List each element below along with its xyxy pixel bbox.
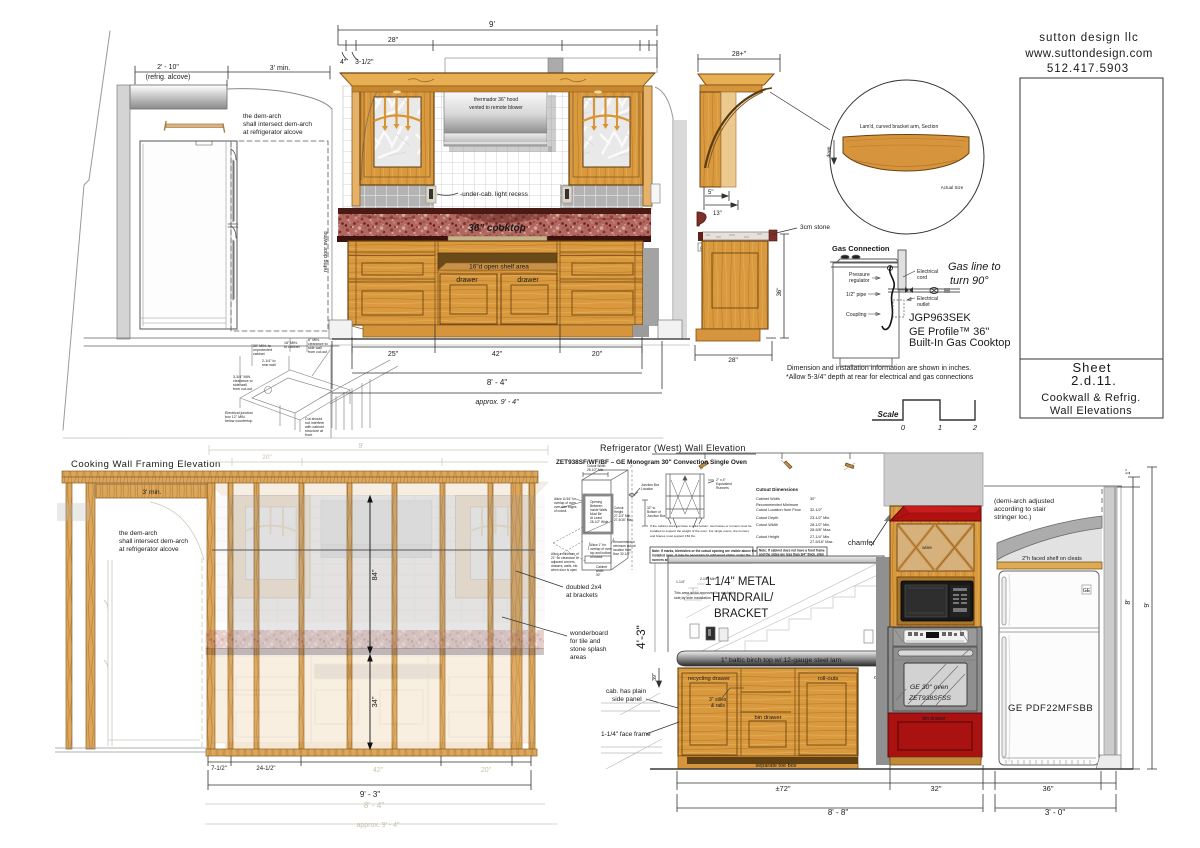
svg-text:thermador 36" hood: thermador 36" hood <box>474 97 518 103</box>
svg-text:20": 20" <box>592 351 603 358</box>
svg-text:JGP963SEK: JGP963SEK <box>909 312 971 324</box>
svg-text:Junction Box: Junction Box <box>647 514 666 518</box>
svg-text:to cabinet: to cabinet <box>284 345 300 349</box>
svg-text:(refrig. alcove): (refrig. alcove) <box>146 74 191 81</box>
svg-text:1" baltic birch top w/ 12-gaug: 1" baltic birch top w/ 12-gauge steel la… <box>721 657 843 664</box>
svg-text:shall intersect dem-arch: shall intersect dem-arch <box>243 121 312 128</box>
svg-text:16"d open shelf area: 16"d open shelf area <box>469 264 529 271</box>
svg-text:8' - 8": 8' - 8" <box>828 808 849 817</box>
svg-text:5": 5" <box>708 190 713 196</box>
svg-text:3' min.: 3' min. <box>270 65 290 72</box>
svg-text:30": 30" <box>596 573 601 577</box>
svg-text:Dimension and installation inf: Dimension and installation information a… <box>787 365 971 372</box>
svg-text:2-1/2" Min.: 2-1/2" Min. <box>700 577 716 581</box>
svg-text:If the cabinet does not have a: If the cabinet does not have a solid bot… <box>650 524 752 528</box>
svg-text:side by side installation.: side by side installation. <box>674 596 712 600</box>
svg-text:28-5/8" Max.: 28-5/8" Max. <box>810 528 831 532</box>
svg-text:24-1/2": 24-1/2" <box>256 766 275 772</box>
svg-text:areas: areas <box>570 654 587 661</box>
svg-text:This area is not approved for: This area is not approved for stackable <box>674 591 736 595</box>
svg-text:refrig door swing: refrig door swing <box>323 231 329 272</box>
svg-text:roll-outs: roll-outs <box>818 676 839 682</box>
svg-text:3-1/2": 3-1/2" <box>355 59 374 66</box>
svg-text:rear wall: rear wall <box>262 363 276 367</box>
svg-text:Cutout Dimensions: Cutout Dimensions <box>756 487 799 492</box>
svg-text:28": 28" <box>388 37 399 44</box>
svg-text:below countertop: below countertop <box>225 419 252 423</box>
svg-text:drawer: drawer <box>456 277 478 284</box>
svg-text:-under-cab. light recess: -under-cab. light recess <box>460 191 529 198</box>
svg-text:2: 2 <box>972 423 978 432</box>
svg-text:Coupling: Coupling <box>846 312 867 318</box>
svg-text:30": 30" <box>810 497 816 501</box>
svg-text:installed to support the weigh: installed to support the weight of the o… <box>650 529 749 533</box>
svg-text:Cutout Location from Floor: Cutout Location from Floor <box>756 508 802 512</box>
svg-text:GE PDF22MFSBB: GE PDF22MFSBB <box>1008 703 1093 714</box>
svg-text:Cutout Height: Cutout Height <box>756 535 780 539</box>
svg-text:and braces must support 150 lb: and braces must support 150 lbs. <box>650 534 696 538</box>
svg-text:7-1/2": 7-1/2" <box>211 766 227 772</box>
svg-text:ZET938SF/WF/BF – GE Monogram 3: ZET938SF/WF/BF – GE Monogram 30" Convect… <box>556 459 747 466</box>
svg-text:1-1/4": 1-1/4" <box>676 580 686 584</box>
svg-text:Cookwall & Refrig.: Cookwall & Refrig. <box>1041 392 1140 404</box>
svg-text:28-1/2" Min.: 28-1/2" Min. <box>587 468 604 472</box>
svg-text:8': 8' <box>1125 599 1132 604</box>
svg-text:27-5/16" Max.: 27-5/16" Max. <box>614 518 634 522</box>
svg-text:drawer: drawer <box>517 277 539 284</box>
svg-text:27-1/4" Min.: 27-1/4" Min. <box>810 535 830 539</box>
svg-text:Runners: Runners <box>716 486 729 490</box>
svg-text:Lam'd, curved bracket arm, Sec: Lam'd, curved bracket arm, Section <box>860 124 939 130</box>
svg-text:8' - 4": 8' - 4" <box>364 801 385 810</box>
svg-text:outlet: outlet <box>917 302 930 308</box>
svg-text:Location: Location <box>641 487 653 491</box>
svg-text:512.417.5903: 512.417.5903 <box>1047 63 1129 75</box>
svg-text:25": 25" <box>388 351 399 358</box>
svg-text:4": 4" <box>340 59 347 66</box>
svg-text:3' - 0": 3' - 0" <box>1045 808 1066 817</box>
svg-text:www.suttondesign.com: www.suttondesign.com <box>1024 48 1153 60</box>
svg-text:at refrigerator alcove: at refrigerator alcove <box>119 546 179 553</box>
svg-text:ZET938SFSS: ZET938SFSS <box>908 695 951 702</box>
svg-text:28-1/2" Min.: 28-1/2" Min. <box>810 523 830 527</box>
svg-text:GE: GE <box>1083 588 1091 594</box>
svg-text:GE 30" oven: GE 30" oven <box>910 684 949 691</box>
svg-text:42": 42" <box>373 767 384 774</box>
svg-text:floor 32-1/2": floor 32-1/2" <box>613 552 630 556</box>
svg-text:Note: If marks, blemishes or t: Note: If marks, blemishes or the cutout … <box>652 549 757 553</box>
svg-text:32": 32" <box>930 784 941 793</box>
svg-text:wonderboard: wonderboard <box>569 630 608 637</box>
svg-text:when door is open: when door is open <box>551 568 577 572</box>
svg-text:Gas Connection: Gas Connection <box>832 244 890 253</box>
svg-text:20": 20" <box>481 767 492 774</box>
svg-text:2' - 10": 2' - 10" <box>157 64 179 71</box>
svg-text:from cut-out: from cut-out <box>308 350 327 354</box>
svg-text:Actual Size: Actual Size <box>941 185 964 190</box>
svg-text:BRACKET: BRACKET <box>714 608 768 620</box>
svg-text:cabinet: cabinet <box>253 352 265 356</box>
svg-text:4'-3": 4'-3" <box>634 625 648 649</box>
svg-text:separate toe box: separate toe box <box>756 763 797 769</box>
svg-text:9': 9' <box>1144 602 1151 607</box>
svg-text:side panel: side panel <box>612 696 642 703</box>
svg-text:9': 9' <box>358 443 363 450</box>
svg-text:Cabinet Width: Cabinet Width <box>756 497 780 501</box>
svg-text:Gas line to: Gas line to <box>948 261 1001 273</box>
svg-text:28+": 28+" <box>732 51 747 58</box>
svg-text:turn 90°: turn 90° <box>950 275 989 287</box>
svg-text:wine: wine <box>922 545 932 551</box>
svg-text:3cm stone: 3cm stone <box>800 224 830 231</box>
svg-text:down: down <box>826 146 831 157</box>
svg-text:cab. has plain: cab. has plain <box>606 688 646 695</box>
svg-text:Cutout Depth: Cutout Depth <box>756 516 778 520</box>
svg-text:3' min.: 3' min. <box>143 489 162 496</box>
svg-text:of cutout: of cutout <box>590 555 602 559</box>
svg-text:doubled 2x4: doubled 2x4 <box>566 584 602 591</box>
svg-text:at brackets: at brackets <box>566 592 599 599</box>
svg-text:the dem-arch: the dem-arch <box>243 113 282 120</box>
svg-text:Cutout Width: Cutout Width <box>756 523 778 527</box>
svg-text:bin drawer: bin drawer <box>754 715 781 721</box>
svg-text:cord: cord <box>917 275 927 281</box>
svg-text:Built-In Gas Cooktop: Built-In Gas Cooktop <box>909 337 1011 349</box>
svg-text:1/2" pipe: 1/2" pipe <box>846 292 866 298</box>
svg-text:32-1/2": 32-1/2" <box>810 508 823 512</box>
svg-text:Refrigerator (West) Wall Eleva: Refrigerator (West) Wall Elevation <box>600 443 746 453</box>
svg-text:23-1/2" Min.: 23-1/2" Min. <box>810 516 830 520</box>
svg-text:stone splash: stone splash <box>570 646 607 653</box>
svg-text:approx. 9' - 4": approx. 9' - 4" <box>475 399 519 406</box>
svg-text:Recommended Minimum: Recommended Minimum <box>756 503 798 507</box>
svg-text:27-5/16" Max.: 27-5/16" Max. <box>810 540 834 544</box>
svg-text:2"h faced shelf on cleats: 2"h faced shelf on cleats <box>1022 556 1082 562</box>
svg-text:Wall Elevations: Wall Elevations <box>1050 405 1132 417</box>
svg-text:bin drawer: bin drawer <box>922 716 946 722</box>
svg-text:regulator: regulator <box>849 278 870 284</box>
svg-text:84": 84" <box>370 569 379 580</box>
svg-text:for tile and: for tile and <box>570 638 601 645</box>
svg-text:7": 7" <box>630 465 633 469</box>
svg-text:9': 9' <box>489 20 495 29</box>
svg-text:±72": ±72" <box>775 784 790 793</box>
svg-text:9' - 3": 9' - 3" <box>360 790 381 799</box>
svg-text:20": 20" <box>262 454 272 461</box>
svg-text:36": 36" <box>777 288 783 297</box>
svg-text:1-1/4" face frame: 1-1/4" face frame <box>601 731 651 738</box>
svg-text:28": 28" <box>728 357 738 364</box>
svg-text:& rails: & rails <box>711 703 725 709</box>
svg-text:8' - 4": 8' - 4" <box>487 378 508 387</box>
svg-text:(demi-arch adjusted: (demi-arch adjusted <box>994 498 1054 505</box>
svg-text:13": 13" <box>713 211 722 217</box>
svg-text:36": 36" <box>1042 784 1053 793</box>
svg-text:from cut-out: from cut-out <box>233 387 252 391</box>
svg-text:34": 34" <box>370 696 379 707</box>
svg-text:of cutout: of cutout <box>554 509 566 513</box>
svg-text:Cooking Wall Framing Elevation: Cooking Wall Framing Elevation <box>71 459 221 470</box>
svg-text:28-1/2" Wide: 28-1/2" Wide <box>590 520 609 524</box>
svg-text:1": 1" <box>1126 469 1132 474</box>
svg-text:recycling drawer: recycling drawer <box>688 676 730 682</box>
svg-text:front: front <box>305 433 312 437</box>
svg-text:39": 39" <box>652 673 658 681</box>
svg-text:36" cooktop: 36" cooktop <box>468 223 526 234</box>
svg-text:at refrigerator alcove: at refrigerator alcove <box>243 129 303 136</box>
svg-text:the dem-arch: the dem-arch <box>119 530 158 537</box>
svg-text:shall intersect dem-arch: shall intersect dem-arch <box>119 538 188 545</box>
svg-text:*Allow 5-3/4" depth at rear fo: *Allow 5-3/4" depth at rear for electric… <box>786 374 974 381</box>
svg-text:sutton design llc: sutton design llc <box>1039 32 1138 44</box>
svg-text:1: 1 <box>938 423 942 432</box>
svg-text:2.d.11.: 2.d.11. <box>1071 373 1117 388</box>
svg-text:approx. 9' - 4": approx. 9' - 4" <box>356 822 400 829</box>
svg-text:stringer loc.): stringer loc.) <box>994 514 1031 521</box>
svg-text:according to stair: according to stair <box>994 506 1046 513</box>
svg-text:42": 42" <box>492 351 503 358</box>
svg-text:vented to remote blower: vented to remote blower <box>469 105 523 111</box>
